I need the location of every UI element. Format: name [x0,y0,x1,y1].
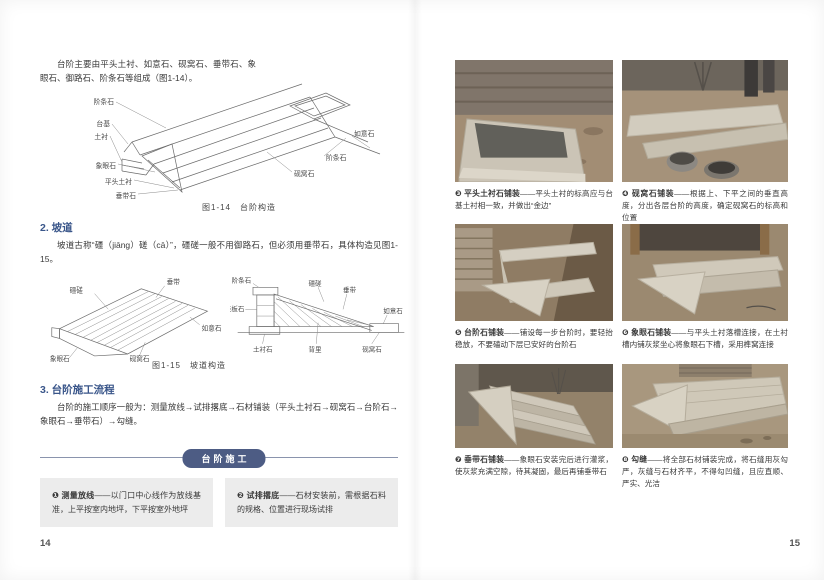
fig15-sec-label-beili: 背里 [309,344,323,353]
fig14-label-chuidai: 垂带石 [116,191,137,200]
fig15-iso-label-ruyi: 如意石 [202,324,222,333]
caption-7-title: 垂带石铺装 [464,455,504,464]
photo-yanwo [622,60,788,182]
photo-4-image [622,60,788,182]
caption-3: ❸ 平头土衬石铺装——平头土衬的标高应与台基土衬相一致，并做出“金边” [455,188,613,212]
figure-1-14-caption: 图1-14 台阶构造 [202,202,276,213]
fig14-label-yanwo: 砚窝石 [294,169,315,178]
caption-5-title: 台阶石铺装 [464,328,504,337]
fig14-label-xiangyan: 象眼石 [96,161,117,170]
caption-4-title: 砚窝石铺装 [632,189,674,198]
fig15-iso-label-chuidai: 垂带 [167,277,181,286]
photo-card-8: ❽ 勾缝——将全部石材铺装完成，将石缝用灰勾严，灰缝与石材齐平，不得勾凹缝，且应… [622,364,788,490]
fig15-sec-label-jietiao: 阶条石 [232,276,252,285]
process-banner: 台阶施工 [40,449,398,467]
fig14-label-pingtou: 平头土衬 [105,177,132,186]
fig14-label-jietiao2: 阶条石 [326,153,347,162]
page-right: ❸ 平头土衬石铺装——平头土衬的标高应与台基土衬相一致，并做出“金边” [424,0,824,580]
book-spread: 台阶主要由平头土衬、如意石、砚窝石、垂带石、象眼石、御路石、阶条石等组成（图1-… [0,0,824,580]
photo-pingtou-tuchen [455,60,613,182]
figure-1-15-iso-drawing: 礓磋 垂带 如意石 砚窝石 象眼石 [44,272,224,362]
fig15-sec-label-douban: 陡板石 [230,304,245,313]
photo-6-image [622,224,788,321]
photo-card-6: ❻ 象眼石铺装——与平头土衬落槽连接，在土衬槽内铺灰浆坐心将象眼石下槽，采用榫窝… [622,224,788,351]
figure-1-14-drawing: 阶条石 台基 土衬 象眼石 平头土衬 垂带石 如意石 阶条石 砚窝石 [52,76,402,204]
caption-8-number: ❽ [622,455,629,464]
caption-5: ❺ 台阶石铺装——铺设每一步台阶时，要轻抬稳放，不要磕动下层已安好的台阶石 [455,327,613,351]
photo-8-image [622,364,788,448]
caption-6: ❻ 象眼石铺装——与平头土衬落槽连接，在土衬槽内铺灰浆坐心将象眼石下槽，采用榫窝… [622,327,788,351]
process-step-boxes: ❶ 测量放线——以门口中心线作为放线基准，上平按室内地坪，下平按室外地坪 ❷ 试… [40,478,398,527]
caption-3-number: ❸ [455,189,462,198]
photo-7-image [455,364,613,448]
photo-3-image [455,60,613,182]
photo-card-5: ❺ 台阶石铺装——铺设每一步台阶时，要轻抬稳放，不要磕动下层已安好的台阶石 [455,224,613,351]
fig15-iso-label-jiangca: 礓磋 [70,286,84,295]
fig15-iso-label-xiangyan: 象眼石 [50,354,70,362]
fig15-sec-label-tuchen: 土衬石 [253,344,273,353]
fig15-sec-label-ruyi: 如意石 [383,306,403,315]
photo-5-image [455,224,613,321]
figure-1-15-caption: 图1-15 坡道构造 [152,360,226,371]
caption-8-desc: ——将全部石材铺装完成，将石缝用灰勾严，灰缝与石材齐平，不得勾凹缝，且应直顺、严… [622,455,788,488]
step-1-title: 测量放线 [61,491,94,500]
page-left: 台阶主要由平头土衬、如意石、砚窝石、垂带石、象眼石、御路石、阶条石等组成（图1-… [0,0,420,580]
photo-goufeng [622,364,788,448]
caption-7-number: ❼ [455,455,462,464]
section-3-body: 台阶的施工顺序一般为：测量放线→试排撂底→石材铺装（平头土衬石→砚窝石→台阶石→… [40,400,398,428]
step-2-title: 试排撂底 [246,491,279,500]
step-box-1: ❶ 测量放线——以门口中心线作为放线基准，上平按室内地坪，下平按室外地坪 [40,478,213,527]
photo-taijieshi [455,224,613,321]
caption-5-number: ❺ [455,328,462,337]
fig14-label-ruyi: 如意石 [354,129,375,138]
banner-pill: 台阶施工 [182,449,265,468]
section-3-heading: 3. 台阶施工流程 [40,382,115,397]
caption-8: ❽ 勾缝——将全部石材铺装完成，将石缝用灰勾严，灰缝与石材齐平，不得勾凹缝，且应… [622,454,788,490]
figure-1-15-section-drawing: 阶条石 陡板石 礓磋 垂带 如意石 土衬石 背里 砚窝石 [230,272,412,362]
caption-4-number: ❹ [622,189,629,198]
caption-7: ❼ 垂带石铺装——象眼石安装完后进行灌浆，使灰浆充满空隙，待其凝固，最后再铺垂带… [455,454,613,478]
fig15-sec-label-yanwo: 砚窝石 [362,344,382,353]
section-2-body: 坡道古称“礓（jiāng）磋（cā）”，礓磋一般不用御路石，但必须用垂带石，具体… [40,238,398,266]
photo-card-4: ❹ 砚窝石铺装——根据上、下平之间的垂直高度，分出各层台阶的高度，确定砚窝石的标… [622,60,788,224]
photo-card-3: ❸ 平头土衬石铺装——平头土衬的标高应与台基土衬相一致，并做出“金边” [455,60,613,212]
fig14-label-jietiao: 阶条石 [94,97,115,106]
photo-xiangyan [622,224,788,321]
figure-1-15: 礓磋 垂带 如意石 砚窝石 象眼石 [44,272,400,376]
figure-1-14: 阶条石 台基 土衬 象眼石 平头土衬 垂带石 如意石 阶条石 砚窝石 图1-14… [52,76,402,218]
caption-6-title: 象眼石铺装 [631,328,671,337]
section-2-heading: 2. 坡道 [40,220,73,235]
fig15-sec-label-jiangca: 礓磋 [309,278,323,287]
caption-8-title: 勾缝 [631,455,647,464]
step-1-number: ❶ [52,491,59,500]
page-number-right: 15 [789,538,800,549]
step-box-2: ❷ 试排撂底——石材安装前，需根据石料的规格、位置进行现场试排 [225,478,398,527]
fig15-sec-label-chuidai: 垂带 [343,285,357,294]
caption-4: ❹ 砚窝石铺装——根据上、下平之间的垂直高度，分出各层台阶的高度，确定砚窝石的标… [622,188,788,224]
fig14-label-tuchen: 土衬 [94,132,108,141]
caption-6-number: ❻ [622,328,629,337]
photo-card-7: ❼ 垂带石铺装——象眼石安装完后进行灌浆，使灰浆充满空隙，待其凝固，最后再铺垂带… [455,364,613,478]
photo-chuidai [455,364,613,448]
step-2-number: ❷ [237,491,244,500]
fig15-iso-label-yanwo: 砚窝石 [130,354,150,362]
caption-3-title: 平头土衬石铺装 [464,189,520,198]
page-number-left: 14 [40,538,51,549]
fig14-label-taiji: 台基 [96,119,110,128]
